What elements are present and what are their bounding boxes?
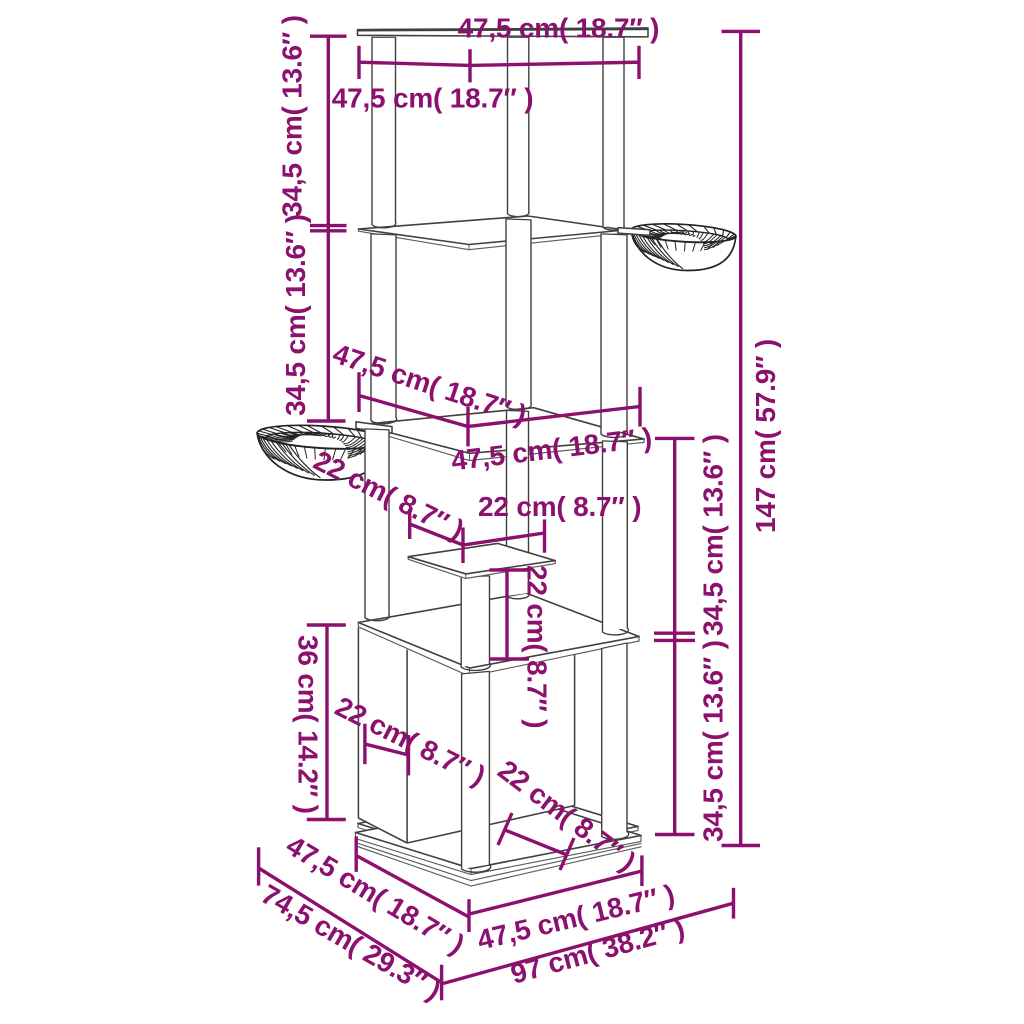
svg-text:34,5 cm( 13.6″ ): 34,5 cm( 13.6″ ) — [698, 434, 729, 636]
svg-text:22 cm( 8.7″ ): 22 cm( 8.7″ ) — [522, 565, 553, 728]
svg-text:34,5 cm( 13.6″ ): 34,5 cm( 13.6″ ) — [277, 15, 308, 217]
svg-text:36 cm( 14.2″ ): 36 cm( 14.2″ ) — [293, 635, 324, 814]
svg-text:34,5 cm( 13.6″ ): 34,5 cm( 13.6″ ) — [698, 640, 729, 842]
svg-text:47,5 cm( 18.7″ ): 47,5 cm( 18.7″ ) — [332, 83, 534, 114]
svg-text:34,5 cm( 13.6″ ): 34,5 cm( 13.6″ ) — [280, 214, 311, 416]
svg-text:22 cm( 8.7″ ): 22 cm( 8.7″ ) — [478, 491, 641, 522]
svg-text:47,5 cm( 18.7″ ): 47,5 cm( 18.7″ ) — [458, 12, 660, 43]
svg-text:147 cm( 57.9″ ): 147 cm( 57.9″ ) — [750, 339, 781, 533]
